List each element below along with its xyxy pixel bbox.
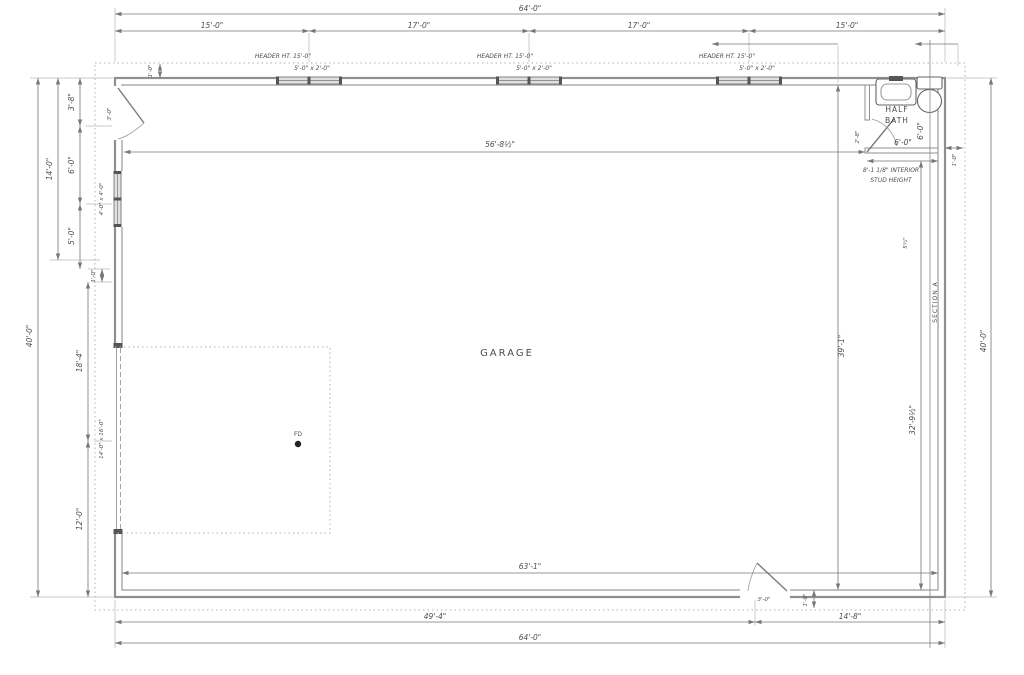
- left-window: [114, 171, 122, 227]
- dim-bottom-overall: 64'-0": [519, 633, 542, 642]
- exterior-walls: [115, 78, 945, 597]
- stud-height-note-2: STUD HEIGHT: [870, 177, 913, 184]
- dim-bottom-right: 14'-8": [839, 612, 862, 621]
- rear-door-size: 3'-0": [757, 597, 770, 603]
- dim-left-jamb: 1'-0": [91, 269, 97, 282]
- floor-plan-page: HALF BATH 6'-0" 6'-0" 2'-8" 8'-1 1/8" IN…: [0, 0, 1024, 675]
- window-size-3: 5'-0" x 2'-0": [739, 65, 775, 72]
- bath-toilet: [917, 77, 942, 113]
- dim-bottom-left: 49'-4": [424, 612, 447, 621]
- window-top-2: [496, 77, 562, 85]
- header-note-2: HEADER HT. 15'-0": [477, 53, 533, 60]
- overhead-door-size: 14'-0" x 16'-0": [99, 419, 105, 459]
- dim-left-mid: 18'-4": [75, 350, 84, 373]
- header-note-3: HEADER HT. 15'-0": [699, 53, 755, 60]
- dim-left-lower: 12'-0": [75, 508, 84, 531]
- left-window-size: 4'-0" x 4'-0": [99, 183, 105, 216]
- dim-right-overall: 40'-0": [979, 330, 988, 353]
- floor-drain-label: FD: [294, 431, 302, 438]
- dim-top-seg-2: 17'-0": [408, 21, 431, 30]
- dim-eave-top: 1'-0": [148, 64, 154, 77]
- bath-depth-dim: 6'-0": [916, 122, 925, 140]
- dim-bottom-interior: 63'-1": [519, 562, 542, 571]
- stud-height-note-1: 8'-1 1/8" INTERIOR: [863, 167, 919, 174]
- dim-wall-thickness: 5½": [902, 237, 909, 248]
- dim-interior-width: 56'-8½": [485, 140, 515, 149]
- bath-sink: [876, 76, 916, 105]
- dim-left-seg-2: 6'-0": [67, 156, 76, 174]
- header-note-1: HEADER HT. 15'-0": [255, 53, 311, 60]
- room-label: GARAGE: [480, 348, 534, 359]
- half-bath-label-2: BATH: [885, 116, 909, 125]
- window-top-1: [276, 77, 342, 85]
- dim-eave-bottom: 1'-0": [803, 593, 809, 606]
- dim-left-seg-1: 3'-8": [67, 93, 76, 111]
- bath-door-dim: 2'-8": [855, 130, 861, 143]
- dim-left-overall: 40'-0": [25, 325, 34, 348]
- dim-garage-depth: 32'-9½": [908, 405, 917, 435]
- dim-interior-height: 39'-1": [837, 335, 846, 358]
- left-door-size: 3'-0": [107, 107, 113, 120]
- dim-top-overall: 64'-0": [519, 4, 542, 13]
- section-label: SECTION A: [932, 281, 939, 322]
- window-size-2: 5'-0" x 2'-0": [516, 65, 552, 72]
- dim-left-seg-3: 5'-0": [67, 227, 76, 245]
- half-bath-label-1: HALF: [885, 105, 908, 114]
- dim-top-seg-4: 15'-0": [836, 21, 859, 30]
- window-size-1: 5'-0" x 2'-0": [294, 65, 330, 72]
- dim-left-upper: 14'-0": [45, 158, 54, 181]
- window-top-3: [716, 77, 782, 85]
- dim-top-seg-3: 17'-0": [628, 21, 651, 30]
- dim-top-seg-1: 15'-0": [201, 21, 224, 30]
- bath-width-dim: 6'-0": [894, 138, 912, 147]
- floor-plan-canvas: HALF BATH 6'-0" 6'-0" 2'-8" 8'-1 1/8" IN…: [0, 0, 1024, 675]
- dim-eave-right: 1'-0": [952, 153, 958, 166]
